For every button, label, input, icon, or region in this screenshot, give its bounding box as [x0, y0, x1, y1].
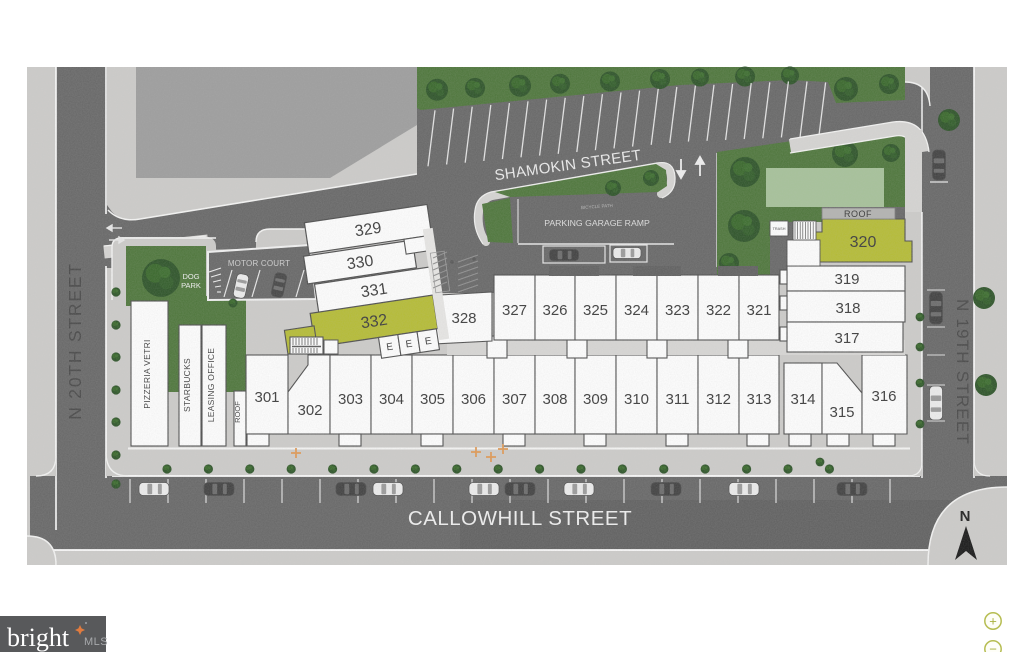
svg-text:bright: bright [7, 623, 70, 652]
svg-text:−: − [989, 642, 997, 652]
svg-text:MLS: MLS [84, 636, 108, 648]
svg-text:+: + [989, 614, 997, 629]
